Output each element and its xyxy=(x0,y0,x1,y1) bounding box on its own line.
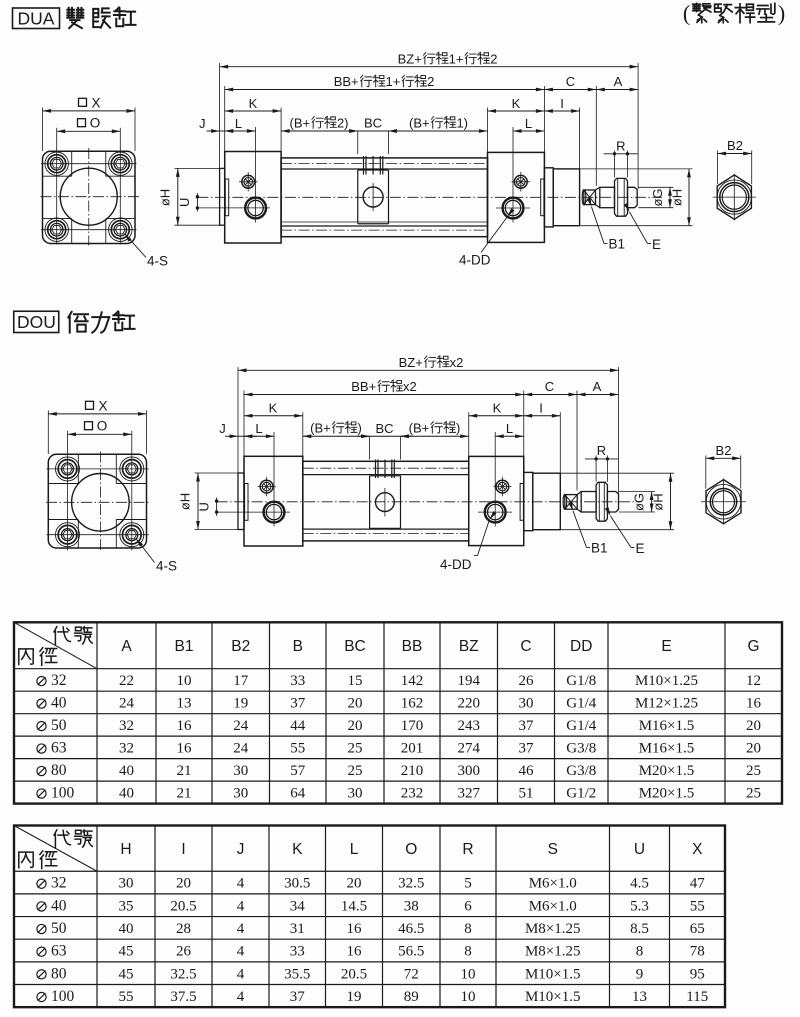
svg-text:72: 72 xyxy=(404,966,419,982)
svg-text:(: ( xyxy=(683,1,690,26)
svg-text:L: L xyxy=(255,421,262,436)
svg-text:20: 20 xyxy=(347,876,362,892)
svg-text:55: 55 xyxy=(119,989,134,1005)
svg-text:32: 32 xyxy=(51,875,67,892)
svg-text:40: 40 xyxy=(119,763,134,779)
svg-text:DD: DD xyxy=(570,638,592,655)
svg-text:51: 51 xyxy=(519,785,534,801)
svg-text:20: 20 xyxy=(348,718,363,734)
svg-text:K: K xyxy=(292,841,303,858)
svg-text:1): 1) xyxy=(456,115,468,130)
svg-text:201: 201 xyxy=(401,740,424,756)
svg-text:33: 33 xyxy=(290,944,305,960)
svg-text:C: C xyxy=(566,74,575,89)
svg-text:30: 30 xyxy=(348,785,363,801)
svg-text:38: 38 xyxy=(404,898,419,914)
svg-text:80: 80 xyxy=(51,965,67,982)
svg-text:M20×1.5: M20×1.5 xyxy=(639,763,695,779)
svg-text:BC: BC xyxy=(375,421,393,436)
svg-text:G3/8: G3/8 xyxy=(566,763,596,779)
svg-text:øG: øG xyxy=(631,493,646,511)
svg-text:46.5: 46.5 xyxy=(398,921,424,937)
svg-text:S: S xyxy=(548,841,558,858)
svg-text:16: 16 xyxy=(746,695,762,711)
svg-text:M16×1.5: M16×1.5 xyxy=(639,740,695,756)
svg-text:5.3: 5.3 xyxy=(630,898,649,914)
svg-text:B2: B2 xyxy=(727,138,743,153)
svg-text:32.5: 32.5 xyxy=(398,876,424,892)
svg-text:I: I xyxy=(560,96,564,111)
svg-text:21: 21 xyxy=(177,763,192,779)
svg-text:R: R xyxy=(616,138,625,153)
svg-text:M8×1.25: M8×1.25 xyxy=(525,921,581,937)
svg-text:95: 95 xyxy=(690,966,705,982)
svg-text:20.5: 20.5 xyxy=(341,966,367,982)
svg-text:35.5: 35.5 xyxy=(284,966,310,982)
svg-text:13: 13 xyxy=(632,989,647,1005)
svg-text:162: 162 xyxy=(401,695,424,711)
svg-text:BB: BB xyxy=(402,638,423,655)
svg-text:J: J xyxy=(199,116,206,131)
svg-text:46: 46 xyxy=(519,763,535,779)
svg-text:170: 170 xyxy=(401,718,424,734)
svg-text:BB+: BB+ xyxy=(334,74,359,89)
svg-text:M8×1.25: M8×1.25 xyxy=(525,944,581,960)
svg-text:BZ+: BZ+ xyxy=(399,355,423,370)
svg-text:4: 4 xyxy=(237,966,245,982)
svg-text:C: C xyxy=(520,638,531,655)
svg-text:100: 100 xyxy=(51,988,75,1005)
svg-text:24: 24 xyxy=(233,718,249,734)
svg-text:40: 40 xyxy=(51,694,67,711)
svg-text:X: X xyxy=(692,841,703,858)
svg-text:8: 8 xyxy=(464,944,472,960)
svg-text:O: O xyxy=(90,116,101,131)
svg-text:35: 35 xyxy=(119,898,134,914)
svg-text:274: 274 xyxy=(458,740,481,756)
svg-text:4: 4 xyxy=(237,876,245,892)
svg-text:24: 24 xyxy=(119,695,135,711)
svg-text:16: 16 xyxy=(177,740,193,756)
svg-text:4: 4 xyxy=(237,898,245,914)
svg-text:31: 31 xyxy=(290,921,305,937)
svg-text:(B+: (B+ xyxy=(409,115,430,130)
svg-text:B2: B2 xyxy=(716,443,732,458)
svg-text:220: 220 xyxy=(458,695,481,711)
svg-text:17: 17 xyxy=(233,673,249,689)
svg-text:): ) xyxy=(778,1,785,26)
svg-text:45: 45 xyxy=(119,944,134,960)
svg-text:142: 142 xyxy=(401,673,424,689)
svg-text:19: 19 xyxy=(347,989,362,1005)
svg-text:I: I xyxy=(539,401,543,416)
svg-text:B1: B1 xyxy=(591,541,608,556)
svg-text:L: L xyxy=(235,116,242,131)
svg-text:4-S: 4-S xyxy=(156,559,177,574)
svg-text:25: 25 xyxy=(348,740,363,756)
svg-text:55: 55 xyxy=(290,740,305,756)
svg-text:80: 80 xyxy=(51,762,67,779)
svg-text:13: 13 xyxy=(177,695,192,711)
svg-text:65: 65 xyxy=(690,921,705,937)
svg-text:4: 4 xyxy=(237,944,245,960)
svg-text:X: X xyxy=(98,398,107,413)
svg-text:M10×1.5: M10×1.5 xyxy=(525,966,581,982)
svg-text:): ) xyxy=(456,421,460,436)
svg-text:BZ+: BZ+ xyxy=(398,51,422,66)
svg-text:25: 25 xyxy=(746,785,761,801)
svg-text:63: 63 xyxy=(51,739,67,756)
svg-text:25: 25 xyxy=(348,763,363,779)
svg-text:15: 15 xyxy=(348,673,363,689)
svg-text:4-S: 4-S xyxy=(147,254,168,269)
svg-text:A: A xyxy=(593,379,602,394)
svg-text:28: 28 xyxy=(176,921,191,937)
svg-text:26: 26 xyxy=(519,673,535,689)
svg-text:J: J xyxy=(219,421,226,436)
svg-text:243: 243 xyxy=(458,718,481,734)
svg-text:(B+: (B+ xyxy=(409,421,430,436)
svg-text:X: X xyxy=(91,95,100,110)
svg-text:E: E xyxy=(636,541,645,556)
svg-text:40: 40 xyxy=(119,921,134,937)
svg-text:30: 30 xyxy=(233,785,248,801)
svg-text:4-DD: 4-DD xyxy=(459,253,491,268)
svg-text:x2: x2 xyxy=(450,355,464,370)
svg-text:4.5: 4.5 xyxy=(630,876,649,892)
svg-text:100: 100 xyxy=(51,784,75,801)
svg-text:30: 30 xyxy=(233,763,248,779)
svg-text:20.5: 20.5 xyxy=(170,898,196,914)
svg-text:BC: BC xyxy=(364,115,382,130)
svg-text:25: 25 xyxy=(746,763,761,779)
svg-text:1+: 1+ xyxy=(449,51,464,66)
svg-text:8.5: 8.5 xyxy=(630,921,649,937)
svg-text:115: 115 xyxy=(686,989,708,1005)
svg-text:1+: 1+ xyxy=(386,74,401,89)
svg-text:G3/8: G3/8 xyxy=(566,740,596,756)
svg-text:M20×1.5: M20×1.5 xyxy=(639,785,695,801)
svg-text:øH: øH xyxy=(650,493,665,510)
svg-text:M10×1.5: M10×1.5 xyxy=(525,989,581,1005)
svg-text:16: 16 xyxy=(177,718,193,734)
svg-text:34: 34 xyxy=(290,898,306,914)
svg-text:37: 37 xyxy=(519,718,535,734)
svg-text:M16×1.5: M16×1.5 xyxy=(639,718,695,734)
svg-text:300: 300 xyxy=(458,763,481,779)
svg-text:4: 4 xyxy=(237,989,245,1005)
svg-text:16: 16 xyxy=(347,921,363,937)
svg-text:BC: BC xyxy=(344,638,366,655)
svg-text:K: K xyxy=(249,96,258,111)
svg-text:øH: øH xyxy=(670,189,685,206)
svg-text:44: 44 xyxy=(290,718,306,734)
svg-text:50: 50 xyxy=(51,717,67,734)
svg-text:2: 2 xyxy=(490,51,497,66)
svg-text:4: 4 xyxy=(237,921,245,937)
svg-text:x2: x2 xyxy=(403,379,417,394)
svg-text:R: R xyxy=(597,443,606,458)
svg-text:26: 26 xyxy=(176,944,192,960)
svg-text:(B+: (B+ xyxy=(290,115,311,130)
svg-text:A: A xyxy=(121,638,132,655)
svg-text:øG: øG xyxy=(650,188,665,206)
svg-text:56.5: 56.5 xyxy=(398,944,424,960)
svg-text:M10×1.25: M10×1.25 xyxy=(635,673,698,689)
svg-text:J: J xyxy=(237,841,245,858)
svg-text:B2: B2 xyxy=(231,638,250,655)
svg-text:2: 2 xyxy=(427,74,434,89)
svg-text:22: 22 xyxy=(119,673,134,689)
svg-text:16: 16 xyxy=(347,944,363,960)
svg-text:327: 327 xyxy=(458,785,481,801)
svg-text:32: 32 xyxy=(119,740,134,756)
svg-text:10: 10 xyxy=(461,989,476,1005)
svg-text:32: 32 xyxy=(51,672,67,689)
svg-text:30.5: 30.5 xyxy=(284,876,310,892)
svg-text:47: 47 xyxy=(690,876,706,892)
svg-text:G: G xyxy=(747,638,759,655)
svg-text:E: E xyxy=(661,638,671,655)
svg-text:4-DD: 4-DD xyxy=(440,557,472,572)
svg-text:U: U xyxy=(634,841,645,858)
svg-text:40: 40 xyxy=(119,785,134,801)
svg-text:14.5: 14.5 xyxy=(341,898,367,914)
svg-text:BZ: BZ xyxy=(459,638,479,655)
svg-text:8: 8 xyxy=(464,921,472,937)
svg-text:32.5: 32.5 xyxy=(170,966,196,982)
svg-text:20: 20 xyxy=(176,876,191,892)
svg-text:6: 6 xyxy=(464,898,472,914)
svg-text:L: L xyxy=(525,116,532,131)
svg-text:45: 45 xyxy=(119,966,134,982)
svg-text:12: 12 xyxy=(746,673,761,689)
svg-text:R: R xyxy=(462,841,473,858)
svg-text:9: 9 xyxy=(636,966,644,982)
svg-text:37: 37 xyxy=(290,989,306,1005)
svg-text:37: 37 xyxy=(519,740,535,756)
svg-text:8: 8 xyxy=(636,944,644,960)
svg-text:øH: øH xyxy=(178,493,193,510)
svg-text:57: 57 xyxy=(290,763,306,779)
svg-text:30: 30 xyxy=(519,695,534,711)
svg-text:63: 63 xyxy=(51,943,67,960)
svg-text:U: U xyxy=(177,198,192,207)
svg-text:K: K xyxy=(512,96,521,111)
svg-text:U: U xyxy=(197,502,212,511)
svg-text:): ) xyxy=(358,421,362,436)
svg-text:K: K xyxy=(493,401,502,416)
svg-text:K: K xyxy=(269,401,278,416)
svg-text:37: 37 xyxy=(290,695,306,711)
svg-text:10: 10 xyxy=(177,673,192,689)
svg-text:30: 30 xyxy=(119,876,134,892)
svg-text:24: 24 xyxy=(233,740,249,756)
svg-text:G1/2: G1/2 xyxy=(566,785,596,801)
svg-text:20: 20 xyxy=(746,718,761,734)
svg-text:DOU: DOU xyxy=(17,312,56,332)
svg-text:H: H xyxy=(120,841,131,858)
svg-text:øH: øH xyxy=(158,189,173,206)
svg-text:19: 19 xyxy=(233,695,248,711)
svg-text:L: L xyxy=(506,421,513,436)
svg-text:L: L xyxy=(350,841,359,858)
svg-text:33: 33 xyxy=(290,673,305,689)
svg-text:BB+: BB+ xyxy=(351,379,376,394)
svg-text:78: 78 xyxy=(690,944,705,960)
svg-text:5: 5 xyxy=(464,876,472,892)
svg-text:M12×1.25: M12×1.25 xyxy=(635,695,698,711)
svg-text:210: 210 xyxy=(401,763,424,779)
svg-text:C: C xyxy=(545,379,554,394)
svg-text:DUA: DUA xyxy=(18,8,55,28)
svg-text:G1/4: G1/4 xyxy=(566,718,597,734)
svg-text:64: 64 xyxy=(290,785,306,801)
svg-text:O: O xyxy=(405,841,417,858)
svg-text:2): 2) xyxy=(337,115,349,130)
svg-text:40: 40 xyxy=(51,897,67,914)
svg-text:37.5: 37.5 xyxy=(170,989,196,1005)
svg-text:55: 55 xyxy=(690,898,705,914)
svg-text:21: 21 xyxy=(177,785,192,801)
svg-text:20: 20 xyxy=(348,695,363,711)
svg-text:I: I xyxy=(181,841,185,858)
svg-text:O: O xyxy=(97,419,108,434)
svg-text:20: 20 xyxy=(746,740,761,756)
svg-text:89: 89 xyxy=(404,989,419,1005)
svg-text:(B+: (B+ xyxy=(310,421,331,436)
svg-text:32: 32 xyxy=(119,718,134,734)
svg-text:G1/4: G1/4 xyxy=(566,695,597,711)
svg-text:A: A xyxy=(614,74,623,89)
svg-text:M6×1.0: M6×1.0 xyxy=(529,876,577,892)
svg-text:E: E xyxy=(652,237,661,252)
svg-text:B1: B1 xyxy=(609,237,626,252)
svg-text:B1: B1 xyxy=(175,638,194,655)
svg-text:10: 10 xyxy=(461,966,476,982)
svg-text:232: 232 xyxy=(401,785,424,801)
svg-text:B: B xyxy=(293,638,303,655)
svg-text:194: 194 xyxy=(458,673,481,689)
svg-text:50: 50 xyxy=(51,920,67,937)
svg-text:G1/8: G1/8 xyxy=(566,673,596,689)
svg-text:M6×1.0: M6×1.0 xyxy=(529,898,577,914)
